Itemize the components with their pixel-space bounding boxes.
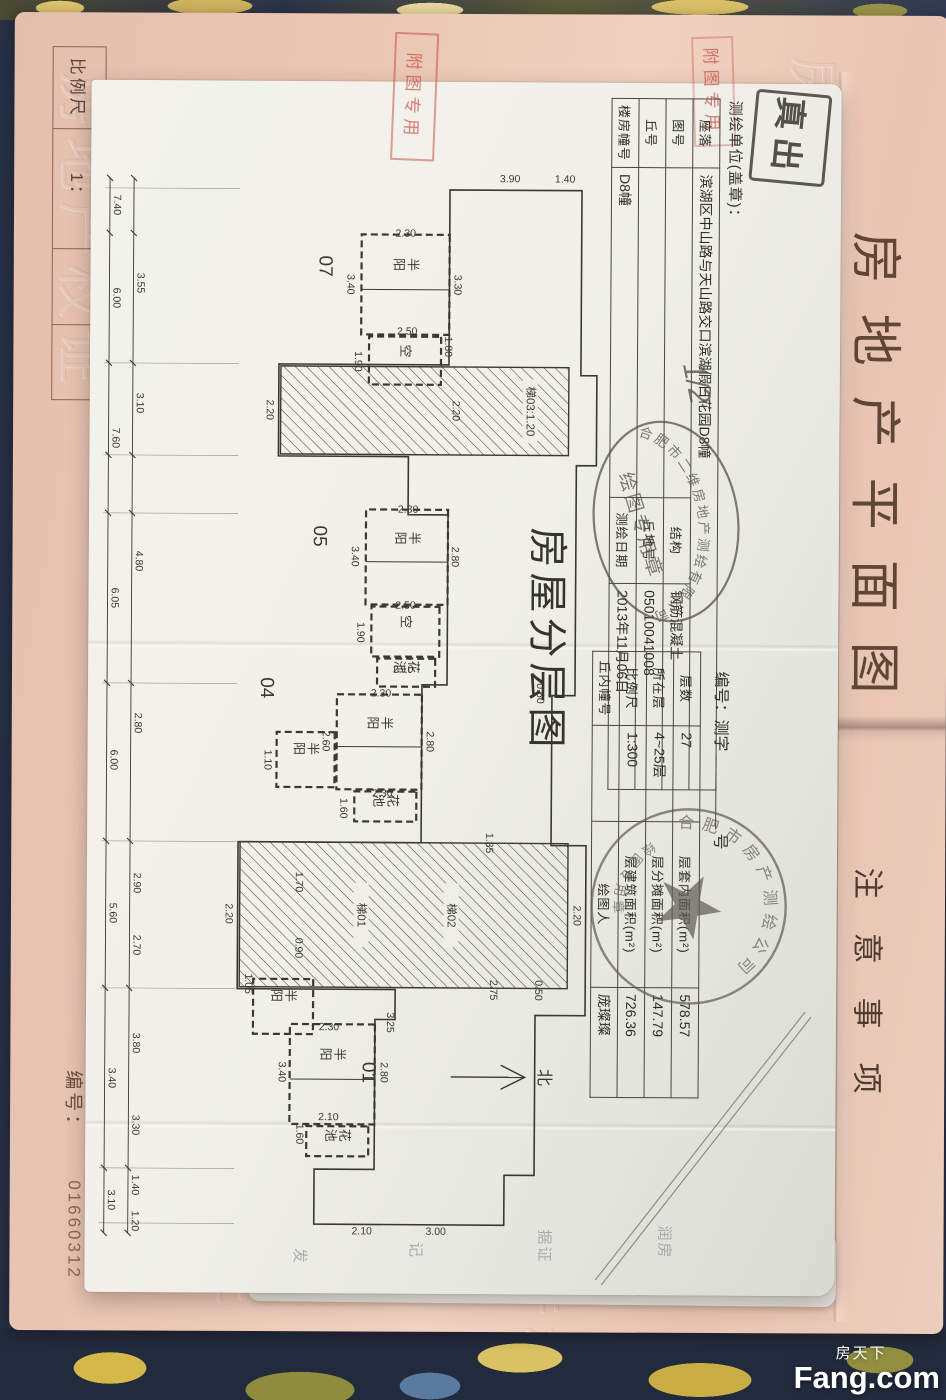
dimension-label: 2.60 [319,730,331,751]
dimension-label: 0.50 [532,980,544,1001]
ghost-text: 润房 [655,1225,676,1259]
dimension-label: 2.80 [377,1062,389,1083]
dimension-label: 1.90 [351,351,363,372]
room-label: 半阳 [269,988,298,1001]
room-label: 半阳 [392,531,421,544]
extension-line [101,840,236,841]
dimension-label: 1.60 [337,798,349,819]
dimension-label: 2.10 [351,1225,372,1237]
dimension-tick [129,451,135,457]
dimension-label: 7.40 [110,194,122,215]
fang-watermark-en: Fang.com [794,1363,940,1392]
svg-text:绘图专用章: 绘图专用章 [607,834,660,924]
dimension-label: 2.80 [131,712,143,733]
dimension-label: 2.75 [487,979,499,1000]
field-value: 庞璨璨 [590,987,618,1097]
extension-line [105,187,240,188]
page-rotated-content: 梯03:1.20梯02梯01半阳空半阳空花池半阳花池半阳半阳花池半阳7.406.… [86,82,840,1294]
dimension-label: 6.00 [110,287,122,308]
dimension-label: 1.10 [261,749,273,770]
balcony-divider [361,289,449,290]
floorplan-page: 梯03:1.20梯02梯01半阳空半阳空花池半阳花池半阳半阳花池半阳7.406.… [84,80,841,1297]
room-label: 半阳 [365,716,394,729]
ghost-text: 据证 [535,1229,556,1263]
dimension-label: 1.85 [482,832,494,853]
fold-crease-horizontal [834,716,946,742]
dimension-tick [129,359,135,365]
dimension-tick [101,1164,107,1170]
survey-office-stamp: 合肥市房产测绘公司 绘图专用章 [568,785,809,1026]
dimension-label: 1.40 [554,173,575,185]
dimension-label: 2.10 [392,663,413,675]
black-seal-stamp: 真出 [748,88,832,187]
room-label: 空 [398,615,413,628]
unit-number: 07 [314,255,335,276]
dimension-label: 1.20 [128,1210,140,1231]
dimension-label: 2.30 [395,227,416,239]
balcony-box [361,234,450,335]
room-label: 花池 [323,1128,352,1141]
dimension-label: 3.30 [451,274,463,295]
extension-line [103,512,238,513]
dimension-label: 2.20 [222,903,234,924]
field-label: 楼房幢号 [611,98,638,167]
stamp-star-icon [654,870,726,943]
dimension-label: 3.40 [348,546,360,567]
room-label: 空 [398,344,413,357]
dimension-label: 1.80 [442,336,454,357]
dimension-label: 1.05 [242,973,254,994]
field-label: 座落 [692,98,719,167]
surveyor-company-stamp: 合肥市二维房地产测绘有限公司 绘图专用章 [567,398,768,643]
photo-of-floorplan-document: 房地产权证房地产权证房地产权证房地产权证房地产权证房地产权证房地产权证房地产权证… [0,0,946,1400]
dimension-tick [107,174,113,180]
dimension-label: 2.50 [396,325,417,337]
dimension-label: 3.80 [129,1032,141,1053]
dimension-label: 5.60 [106,902,118,923]
dimension-tick [125,1164,131,1170]
dimension-label: 3.55 [134,272,146,293]
dimension-tick [128,679,134,685]
dimension-tick [105,451,111,457]
number-prefix: 编号：测字 [711,671,728,751]
dimension-label: 2.30 [370,687,391,699]
dimension-label: 1.40 [128,1174,140,1195]
dimension-label: 2.30 [318,1021,339,1033]
field-label: 所在层 [646,651,673,725]
room-label: 半阳 [318,1047,347,1060]
balcony-box [371,606,439,656]
dimension-label: 1.60 [293,1123,305,1144]
dimension-tick [131,174,137,180]
cover-serial-number: 01660312 [63,1180,83,1280]
notes-title: 注意事项 [847,868,893,1128]
dimension-label: 2.10 [318,1111,339,1123]
dimension-tick [126,984,132,990]
dimension-label: 3.10 [104,1189,116,1210]
dimension-tick [100,1229,106,1235]
fang-watermark: 房天下 Fang.com [794,1342,940,1392]
stair-core [239,841,568,988]
dimension-label: 3.00 [425,1225,446,1237]
extension-line [100,987,235,988]
extension-line [102,682,237,683]
unit-number: 04 [255,677,276,699]
red-seal-stamp: 附图专用 [390,31,439,161]
dimension-tick [127,837,133,843]
dimension-chain-line [127,177,133,1232]
core-label: 梯02 [444,903,457,927]
extension-line [99,1167,234,1168]
field-label: 比例尺 [619,651,646,725]
core-label: 梯01 [354,902,367,926]
field-label: 图号 [665,98,692,167]
unit-number: 05 [308,525,329,546]
balcony-box [336,694,422,790]
document-title: 房屋分层图 [520,527,579,752]
cover-serial-label: 编号： [61,1070,88,1136]
dimension-label: 2.20 [449,400,461,421]
dimension-label: 2.90 [130,872,142,893]
dimension-tick [104,679,110,685]
balcony-divider [336,746,421,747]
extension-line [98,1222,233,1223]
surveyor-unit-label: 测绘单位(盖章)： [724,100,746,224]
dimension-label: 3.40 [105,1067,117,1088]
dimension-label: 2.30 [397,503,418,515]
balcony-divider [365,561,447,562]
unit-number: 01 [357,1061,378,1082]
dimension-tick [102,984,108,990]
dimension-label: 2.30 [372,787,393,799]
dimension-label: 3.10 [133,392,145,413]
dimension-tick [106,229,112,235]
ghost-text: 发 [290,1248,311,1265]
dimension-label: 2.70 [130,934,142,955]
extension-line [103,454,238,455]
ghost-text: 记 [406,1242,427,1259]
core-label: 梯03:1.20 [523,386,536,436]
dimension-label: 6.00 [107,749,119,770]
room-label: 半阳 [391,258,420,271]
dimension-label: 3.40 [275,1061,287,1082]
dimension-tick [105,509,111,515]
dimension-tick [105,359,111,365]
dimension-tick [129,509,135,515]
dimension-label: 6.05 [108,587,120,608]
dimension-tick [103,837,109,843]
dimension-label: 2.20 [263,399,275,420]
dimension-label: 1.70 [292,871,304,892]
balcony-box [365,509,448,604]
dimension-label: 4.80 [132,550,144,571]
field-label: 丘号 [638,98,665,167]
dimension-tick [130,229,136,235]
stamp-bottom-text: 绘图专用章 [607,834,660,924]
dimension-label: 1.90 [354,622,366,643]
dimension-label: 0.90 [292,937,304,958]
stamp-center-text: 绘图专用章 [614,469,667,581]
dimension-label: 2.80 [448,546,460,567]
dimension-label: 7.60 [109,427,121,448]
north-label: 北 [534,1068,553,1085]
dimension-label: 2.80 [423,731,435,752]
dimension-label: 3.30 [129,1114,141,1135]
dimension-label: 3.40 [344,274,356,295]
field-label: 丘内幢号 [592,651,619,725]
dimension-label: 2.50 [395,599,416,611]
dimension-label: 3.90 [499,173,520,185]
dimension-label: 3.25 [383,1012,395,1033]
extension-line [103,362,238,363]
room-label: 半阳 [291,741,320,754]
field-label: 层数 [673,651,700,725]
